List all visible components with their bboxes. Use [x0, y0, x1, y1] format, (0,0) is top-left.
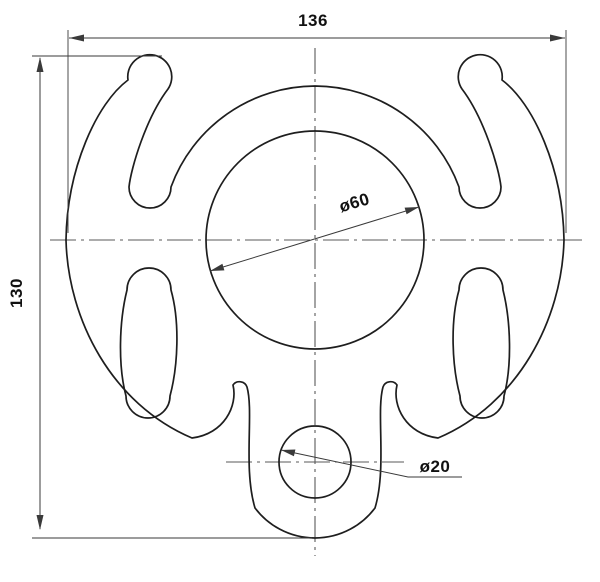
dim-height-arrow-bottom — [37, 515, 44, 530]
technical-drawing-canvas: 136 130 ø60 ø20 — [0, 0, 600, 582]
dim-height-arrow-top — [37, 57, 44, 72]
dim-width-arrow-left — [69, 35, 84, 42]
dim-height-label: 130 — [7, 278, 26, 308]
dim-dia20: ø20 — [281, 450, 462, 478]
dim-width-label: 136 — [298, 11, 328, 30]
dim-width: 136 — [68, 11, 566, 233]
dim-dia60-arrow-upper — [405, 207, 419, 214]
dim-dia60-label: ø60 — [337, 189, 372, 216]
cad-drawing: 136 130 ø60 ø20 — [0, 0, 600, 582]
dim-dia60-arrow-lower — [210, 264, 224, 271]
dim-width-arrow-right — [550, 35, 565, 42]
dim-dia20-arrow — [281, 450, 295, 457]
dim-height: 130 — [7, 56, 312, 538]
dim-dia20-label: ø20 — [420, 457, 451, 476]
